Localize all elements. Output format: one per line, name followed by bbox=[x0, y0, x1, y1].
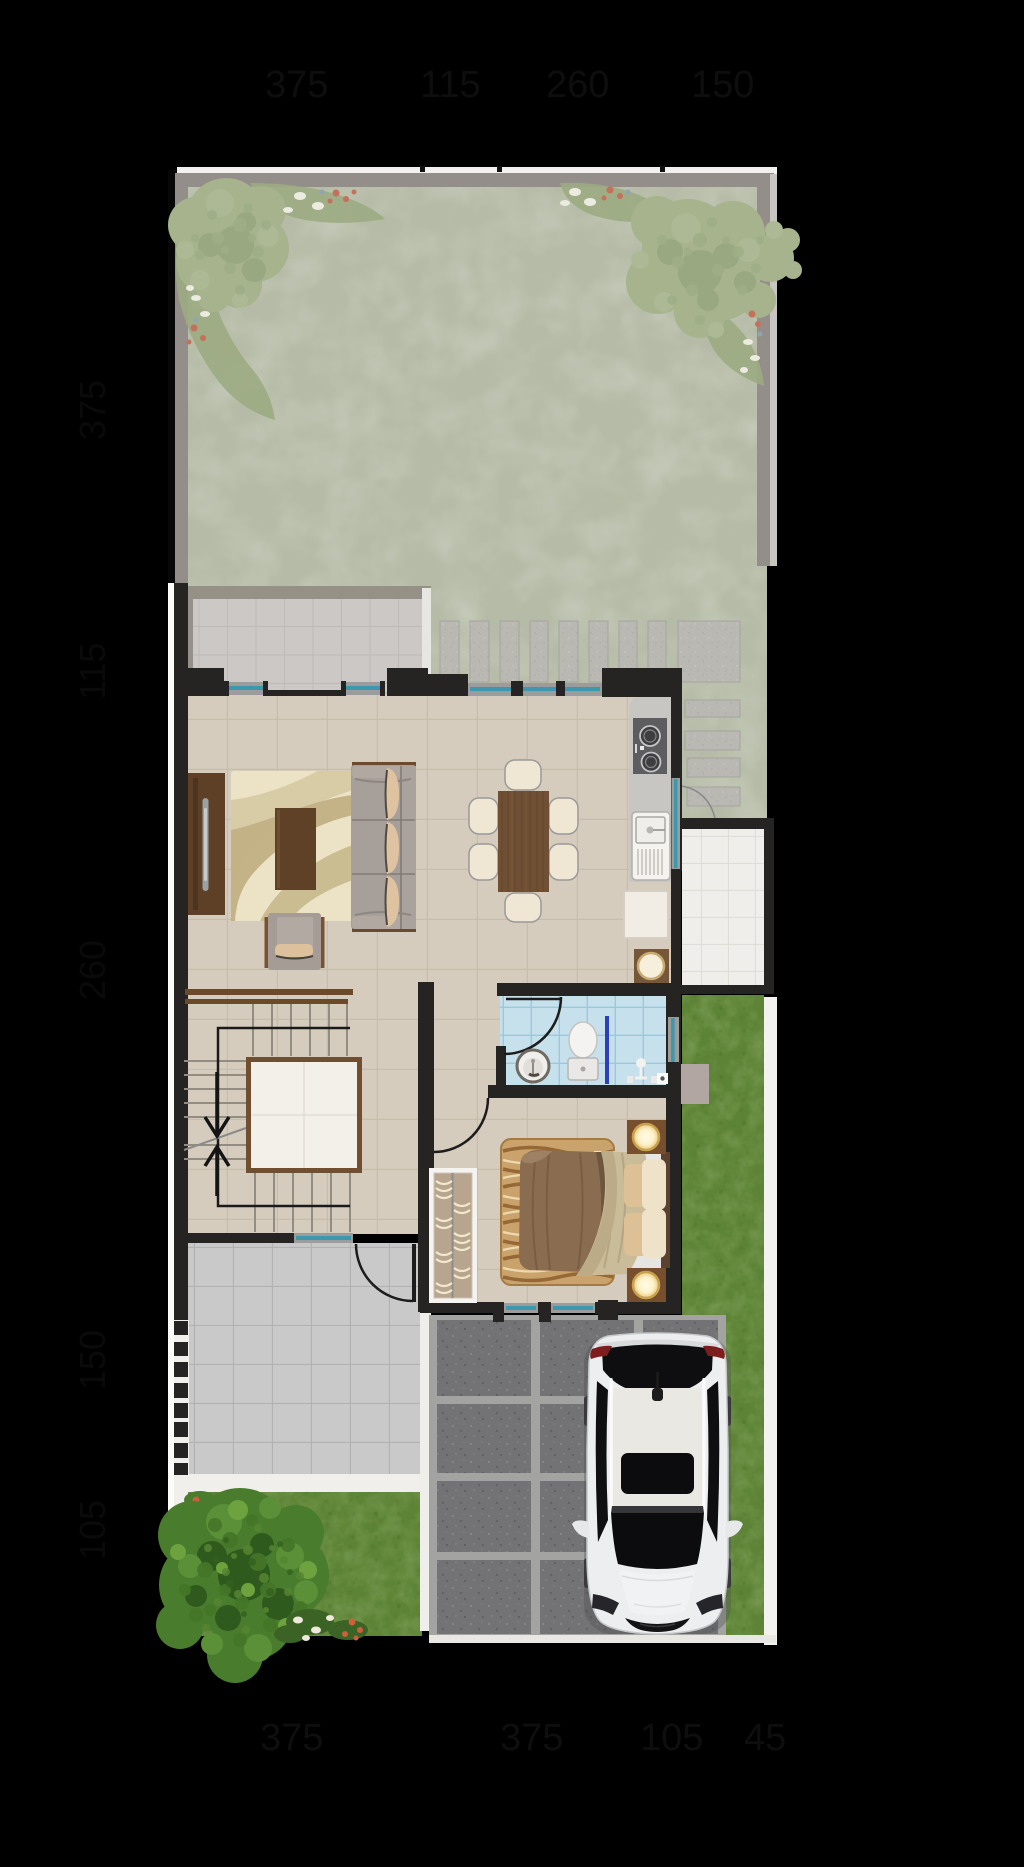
svg-text:150: 150 bbox=[691, 64, 754, 106]
svg-text:105: 105 bbox=[72, 1500, 113, 1560]
svg-text:115: 115 bbox=[420, 64, 481, 106]
svg-text:260: 260 bbox=[546, 64, 609, 106]
svg-text:105: 105 bbox=[640, 1717, 703, 1759]
svg-text:375: 375 bbox=[260, 1717, 323, 1759]
svg-text:375: 375 bbox=[265, 64, 328, 106]
svg-text:375: 375 bbox=[500, 1717, 563, 1759]
svg-text:115: 115 bbox=[72, 643, 113, 700]
svg-text:260: 260 bbox=[72, 940, 113, 1000]
svg-text:375: 375 bbox=[72, 380, 113, 440]
svg-text:150: 150 bbox=[72, 1330, 113, 1390]
svg-text:45: 45 bbox=[744, 1717, 786, 1759]
